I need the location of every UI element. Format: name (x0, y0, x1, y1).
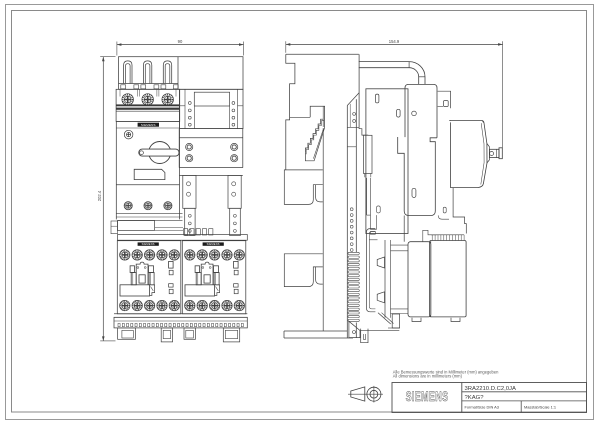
svg-text:?KAG?: ?KAG? (465, 395, 485, 401)
svg-text:SIEMENS: SIEMENS (207, 242, 220, 246)
svg-text:SIEMENS: SIEMENS (142, 242, 155, 246)
svg-text:SIEMENS: SIEMENS (406, 390, 449, 404)
svg-text:Masstab/Scale 1:1: Masstab/Scale 1:1 (524, 404, 556, 409)
svg-text:154.9: 154.9 (389, 39, 400, 44)
svg-text:202.4: 202.4 (97, 190, 102, 201)
svg-text:Format/Size DIN A3: Format/Size DIN A3 (465, 404, 499, 409)
svg-text:3RA2210.D.C2,0JA: 3RA2210.D.C2,0JA (465, 386, 516, 392)
svg-text:All dimensions are in millimet: All dimensions are in millimeters (mm) (393, 374, 463, 379)
svg-text:SIEMENS: SIEMENS (141, 123, 156, 127)
svg-text:90: 90 (178, 39, 183, 44)
